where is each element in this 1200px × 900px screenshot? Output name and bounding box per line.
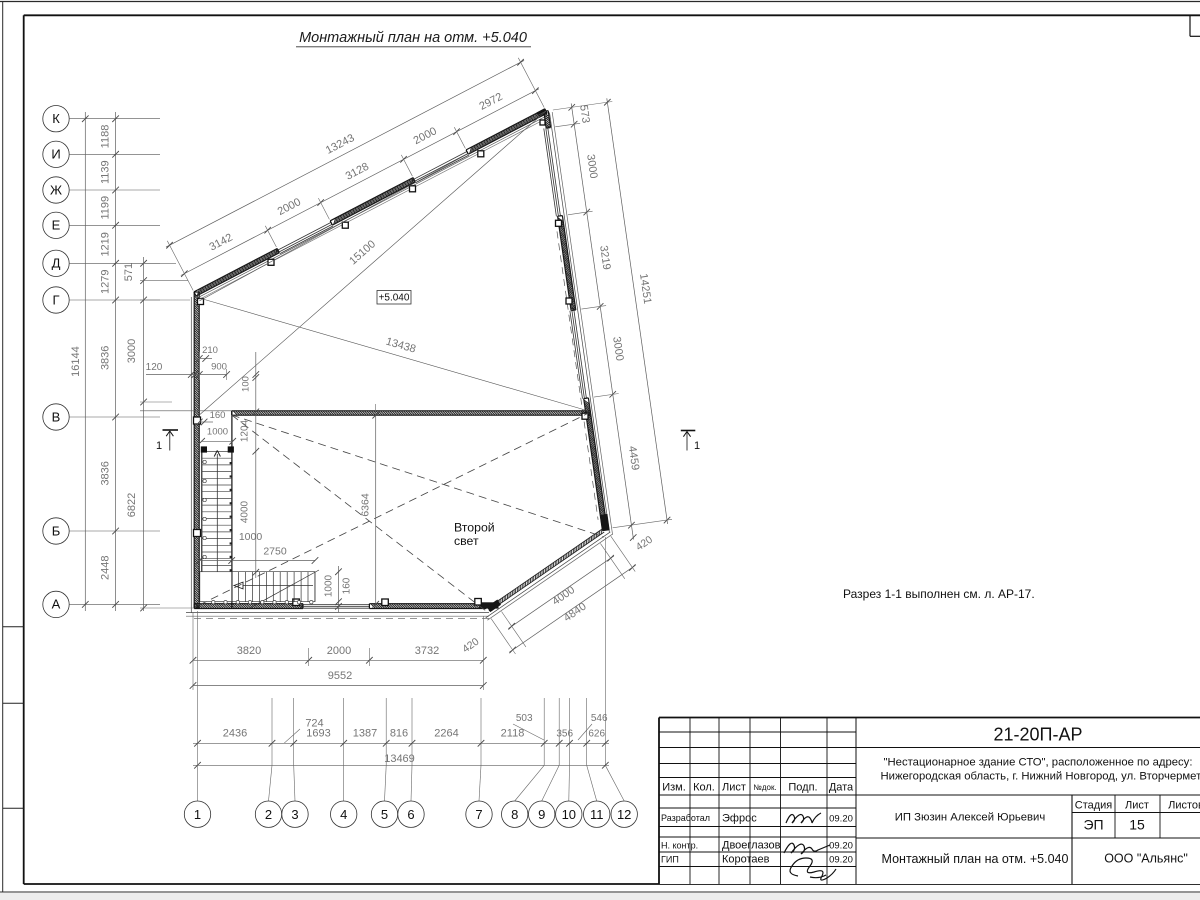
svg-text:816: 816	[390, 728, 408, 740]
svg-text:09.20: 09.20	[829, 841, 853, 852]
svg-text:Монтажный план на отм. +5.040: Монтажный план на отм. +5.040	[882, 852, 1069, 866]
svg-text:1279: 1279	[100, 269, 112, 293]
svg-text:3836: 3836	[100, 346, 112, 370]
svg-text:Ж: Ж	[50, 182, 62, 197]
svg-text:1219: 1219	[100, 232, 112, 256]
svg-text:2: 2	[265, 807, 272, 822]
svg-text:573: 573	[577, 104, 591, 124]
svg-text:Б: Б	[52, 523, 61, 538]
svg-text:2750: 2750	[263, 546, 287, 558]
svg-text:100: 100	[241, 376, 252, 392]
svg-text:21-20П-АР: 21-20П-АР	[994, 725, 1083, 745]
svg-text:4: 4	[340, 807, 347, 822]
svg-text:1: 1	[156, 440, 162, 452]
svg-text:6364: 6364	[360, 493, 372, 517]
svg-text:Кол.: Кол.	[693, 782, 715, 794]
svg-text:1387: 1387	[353, 728, 377, 740]
svg-text:1000: 1000	[207, 427, 228, 438]
svg-text:120: 120	[146, 362, 163, 373]
svg-text:1: 1	[694, 440, 700, 452]
svg-text:Разработал: Разработал	[661, 813, 710, 823]
svg-text:Лист: Лист	[722, 782, 746, 794]
svg-text:11: 11	[590, 807, 604, 822]
svg-text:Лист: Лист	[1125, 800, 1149, 812]
svg-text:Стадия: Стадия	[1075, 800, 1113, 812]
svg-text:Двоеглазов: Двоеглазов	[722, 840, 781, 852]
svg-text:И: И	[51, 147, 60, 162]
svg-text:13469: 13469	[384, 753, 415, 765]
svg-text:+5.040: +5.040	[379, 293, 410, 304]
svg-text:Подп.: Подп.	[788, 782, 817, 794]
svg-text:"Нестационарное здание СТО", р: "Нестационарное здание СТО", расположенн…	[884, 757, 1193, 769]
svg-text:Изм.: Изм.	[662, 782, 686, 794]
svg-text:8: 8	[511, 807, 518, 822]
svg-text:546: 546	[591, 713, 608, 724]
svg-text:ГИП: ГИП	[661, 855, 679, 865]
svg-text:15: 15	[1129, 817, 1145, 833]
svg-text:Разрез 1-1 выполнен см. л. АР-: Разрез 1-1 выполнен см. л. АР-17.	[843, 587, 1035, 601]
svg-text:1: 1	[194, 807, 201, 822]
svg-text:3820: 3820	[237, 645, 261, 657]
svg-text:09.20: 09.20	[829, 855, 853, 866]
svg-text:Монтажный план на отм. +5.040: Монтажный план на отм. +5.040	[299, 30, 527, 46]
svg-text:свет: свет	[454, 534, 479, 548]
svg-text:571: 571	[123, 263, 135, 281]
svg-text:В: В	[52, 409, 61, 424]
svg-text:Дата: Дата	[829, 782, 854, 794]
svg-text:Листов: Листов	[1168, 800, 1200, 812]
svg-text:4000: 4000	[240, 500, 251, 523]
svg-text:Д: Д	[52, 256, 61, 271]
svg-text:Е: Е	[52, 218, 61, 233]
svg-text:1000: 1000	[239, 531, 263, 543]
svg-text:16144: 16144	[70, 346, 82, 377]
svg-text:10: 10	[562, 807, 576, 822]
svg-text:А: А	[52, 597, 61, 612]
svg-text:К: К	[52, 111, 60, 126]
svg-text:Н. контр.: Н. контр.	[661, 841, 698, 851]
svg-text:Коротаев: Коротаев	[722, 854, 770, 866]
svg-text:09.20: 09.20	[829, 814, 853, 825]
svg-text:1139: 1139	[100, 160, 112, 184]
svg-text:3000: 3000	[126, 339, 138, 363]
svg-text:503: 503	[516, 713, 533, 724]
svg-text:2448: 2448	[100, 555, 112, 579]
svg-text:9: 9	[538, 807, 545, 822]
svg-text:1204: 1204	[240, 419, 251, 442]
svg-text:7: 7	[475, 807, 482, 822]
svg-text:160: 160	[342, 577, 353, 594]
svg-text:3836: 3836	[100, 461, 112, 485]
svg-text:2000: 2000	[327, 645, 351, 657]
svg-text:3732: 3732	[415, 645, 439, 657]
svg-text:12: 12	[617, 807, 631, 822]
svg-text:Второй: Второй	[454, 521, 495, 535]
svg-text:2118: 2118	[501, 728, 525, 740]
svg-text:5: 5	[381, 807, 388, 822]
svg-text:ЭП: ЭП	[1083, 817, 1103, 833]
svg-text:160: 160	[210, 410, 226, 421]
svg-text:9552: 9552	[328, 670, 352, 682]
svg-text:6822: 6822	[126, 493, 138, 517]
svg-text:ИП Зюзин Алексей Юрьевич: ИП Зюзин Алексей Юрьевич	[895, 812, 1046, 824]
svg-text:6: 6	[407, 807, 414, 822]
svg-text:626: 626	[588, 729, 605, 740]
svg-text:1188: 1188	[100, 125, 112, 149]
svg-text:900: 900	[211, 362, 227, 373]
svg-text:№док.: №док.	[753, 783, 776, 792]
svg-text:Г: Г	[52, 292, 59, 307]
svg-text:1000: 1000	[324, 574, 335, 597]
svg-text:1199: 1199	[100, 196, 112, 220]
svg-text:210: 210	[202, 345, 218, 356]
svg-text:3: 3	[291, 807, 298, 822]
svg-text:Нижегородская область, г. Нижн: Нижегородская область, г. Нижний Новгоро…	[880, 771, 1200, 783]
svg-text:ООО "Альянс": ООО "Альянс"	[1104, 852, 1188, 866]
svg-text:724: 724	[305, 718, 323, 730]
svg-text:2264: 2264	[434, 728, 458, 740]
svg-text:356: 356	[556, 729, 573, 740]
svg-text:Эфрос: Эфрос	[722, 813, 757, 825]
svg-text:2436: 2436	[223, 728, 247, 740]
